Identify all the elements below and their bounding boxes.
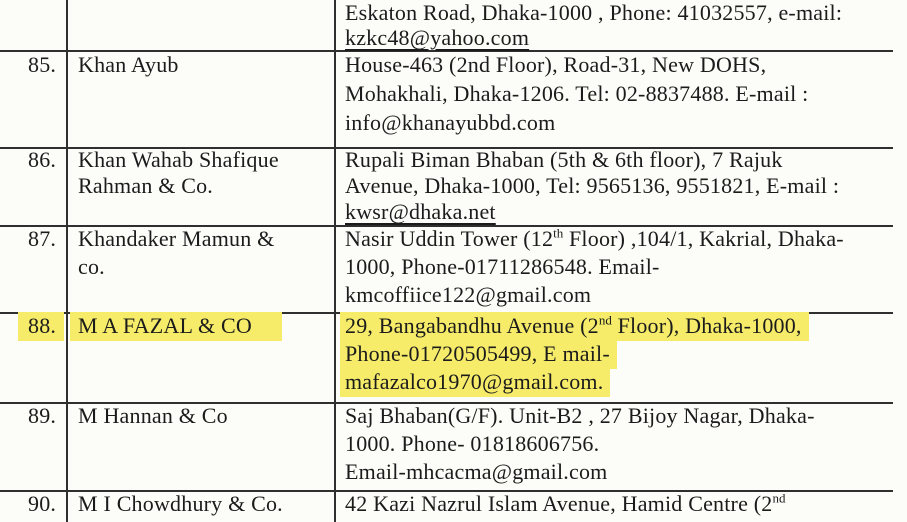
- address-line: 1000. Phone- 01818606756.: [345, 430, 905, 458]
- firm-name: Rahman & Co.: [78, 173, 330, 199]
- firm-name: Khan Wahab Shafique: [78, 147, 330, 173]
- address-line: Saj Bhaban(G/F). Unit-B2 , 27 Bijoy Naga…: [345, 402, 905, 430]
- address-cell: 42 Kazi Nazrul Islam Avenue, Hamid Centr…: [345, 490, 905, 518]
- firm-name-cell: M I Chowdhury & Co.: [78, 490, 330, 518]
- address-line-highlighted: Phone-01720505499, E mail-: [340, 340, 617, 369]
- address-cell: 29, Bangabandhu Avenue (2nd Floor), Dhak…: [345, 312, 905, 396]
- email-underlined: kzkc48@yahoo.com: [345, 25, 529, 50]
- address-line: Mohakhali, Dhaka-1206. Tel: 02-8837488. …: [345, 79, 905, 108]
- firm-name-highlighted: M A FAZAL & CO: [70, 312, 282, 341]
- email-highlighted: mafazalco1970@gmail.com.: [340, 368, 610, 397]
- address-cell: Eskaton Road, Dhaka-1000 , Phone: 410325…: [345, 0, 905, 50]
- serial-no-cell: 87.: [0, 225, 64, 253]
- serial-no: 87.: [28, 225, 64, 253]
- address-line: Nasir Uddin Tower (12th Floor) ,104/1, K…: [345, 225, 905, 253]
- serial-no-highlighted: 88.: [18, 312, 64, 341]
- serial-no-cell: 88.: [0, 312, 64, 340]
- address-cell: Saj Bhaban(G/F). Unit-B2 , 27 Bijoy Naga…: [345, 402, 905, 486]
- email-text: kmcoffiice122@gmail.com: [345, 281, 905, 309]
- serial-no-cell: 86.: [0, 147, 64, 173]
- address-line-highlighted: 29, Bangabandhu Avenue (2nd Floor), Dhak…: [340, 312, 809, 341]
- table-row-86: 86. Khan Wahab Shafique Rahman & Co. Rup…: [0, 147, 907, 228]
- ordinal-superscript: th: [553, 226, 563, 241]
- email-underlined: kwsr@dhaka.net: [345, 199, 496, 224]
- firm-name-cell: M A FAZAL & CO: [78, 312, 330, 340]
- serial-no-cell: 85.: [0, 50, 64, 79]
- table-row-85: 85. Khan Ayub House-463 (2nd Floor), Roa…: [0, 50, 907, 154]
- firm-name: Khandaker Mamun &: [78, 225, 330, 253]
- firm-name-cell: Khandaker Mamun & co.: [78, 225, 330, 281]
- address-line: Eskaton Road, Dhaka-1000 , Phone: 410325…: [345, 0, 905, 25]
- address-cell: Rupali Biman Bhaban (5th & 6th floor), 7…: [345, 147, 905, 225]
- firm-name: Khan Ayub: [78, 50, 330, 79]
- table-row-90-partial: 90. M I Chowdhury & Co. 42 Kazi Nazrul I…: [0, 490, 907, 522]
- table-row-partial-top: Eskaton Road, Dhaka-1000 , Phone: 410325…: [0, 0, 907, 50]
- serial-no: 86.: [28, 147, 64, 173]
- firm-name: M Hannan & Co: [78, 402, 330, 430]
- serial-no: 85.: [28, 50, 64, 79]
- address-line: Rupali Biman Bhaban (5th & 6th floor), 7…: [345, 147, 905, 173]
- firm-name-cell: Khan Wahab Shafique Rahman & Co.: [78, 147, 330, 199]
- table-row-89: 89. M Hannan & Co Saj Bhaban(G/F). Unit-…: [0, 402, 907, 494]
- serial-no-cell: 90.: [0, 490, 64, 518]
- firm-name: M I Chowdhury & Co.: [78, 490, 330, 518]
- serial-no-cell: 89.: [0, 402, 64, 430]
- serial-no: 89.: [28, 402, 64, 430]
- scanned-directory-page: Eskaton Road, Dhaka-1000 , Phone: 410325…: [0, 0, 907, 522]
- ordinal-superscript: nd: [772, 491, 785, 506]
- firm-name-cell: M Hannan & Co: [78, 402, 330, 430]
- ordinal-superscript: nd: [599, 313, 612, 328]
- address-cell: Nasir Uddin Tower (12th Floor) ,104/1, K…: [345, 225, 905, 309]
- email-text: info@khanayubbd.com: [345, 108, 905, 137]
- address-line: Avenue, Dhaka-1000, Tel: 9565136, 955182…: [345, 173, 905, 199]
- firm-name-cell: Khan Ayub: [78, 50, 330, 79]
- firm-name: co.: [78, 253, 330, 281]
- address-line: 42 Kazi Nazrul Islam Avenue, Hamid Centr…: [345, 490, 905, 518]
- address-line: House-463 (2nd Floor), Road-31, New DOHS…: [345, 50, 905, 79]
- table-row-88-highlighted: 88. M A FAZAL & CO 29, Bangabandhu Avenu…: [0, 312, 907, 409]
- address-line: 1000, Phone-01711286548. Email-: [345, 253, 905, 281]
- table-row-87: 87. Khandaker Mamun & co. Nasir Uddin To…: [0, 225, 907, 318]
- address-cell: House-463 (2nd Floor), Road-31, New DOHS…: [345, 50, 905, 137]
- serial-no: 90.: [28, 490, 64, 518]
- email-text: Email-mhcacma@gmail.com: [345, 458, 905, 486]
